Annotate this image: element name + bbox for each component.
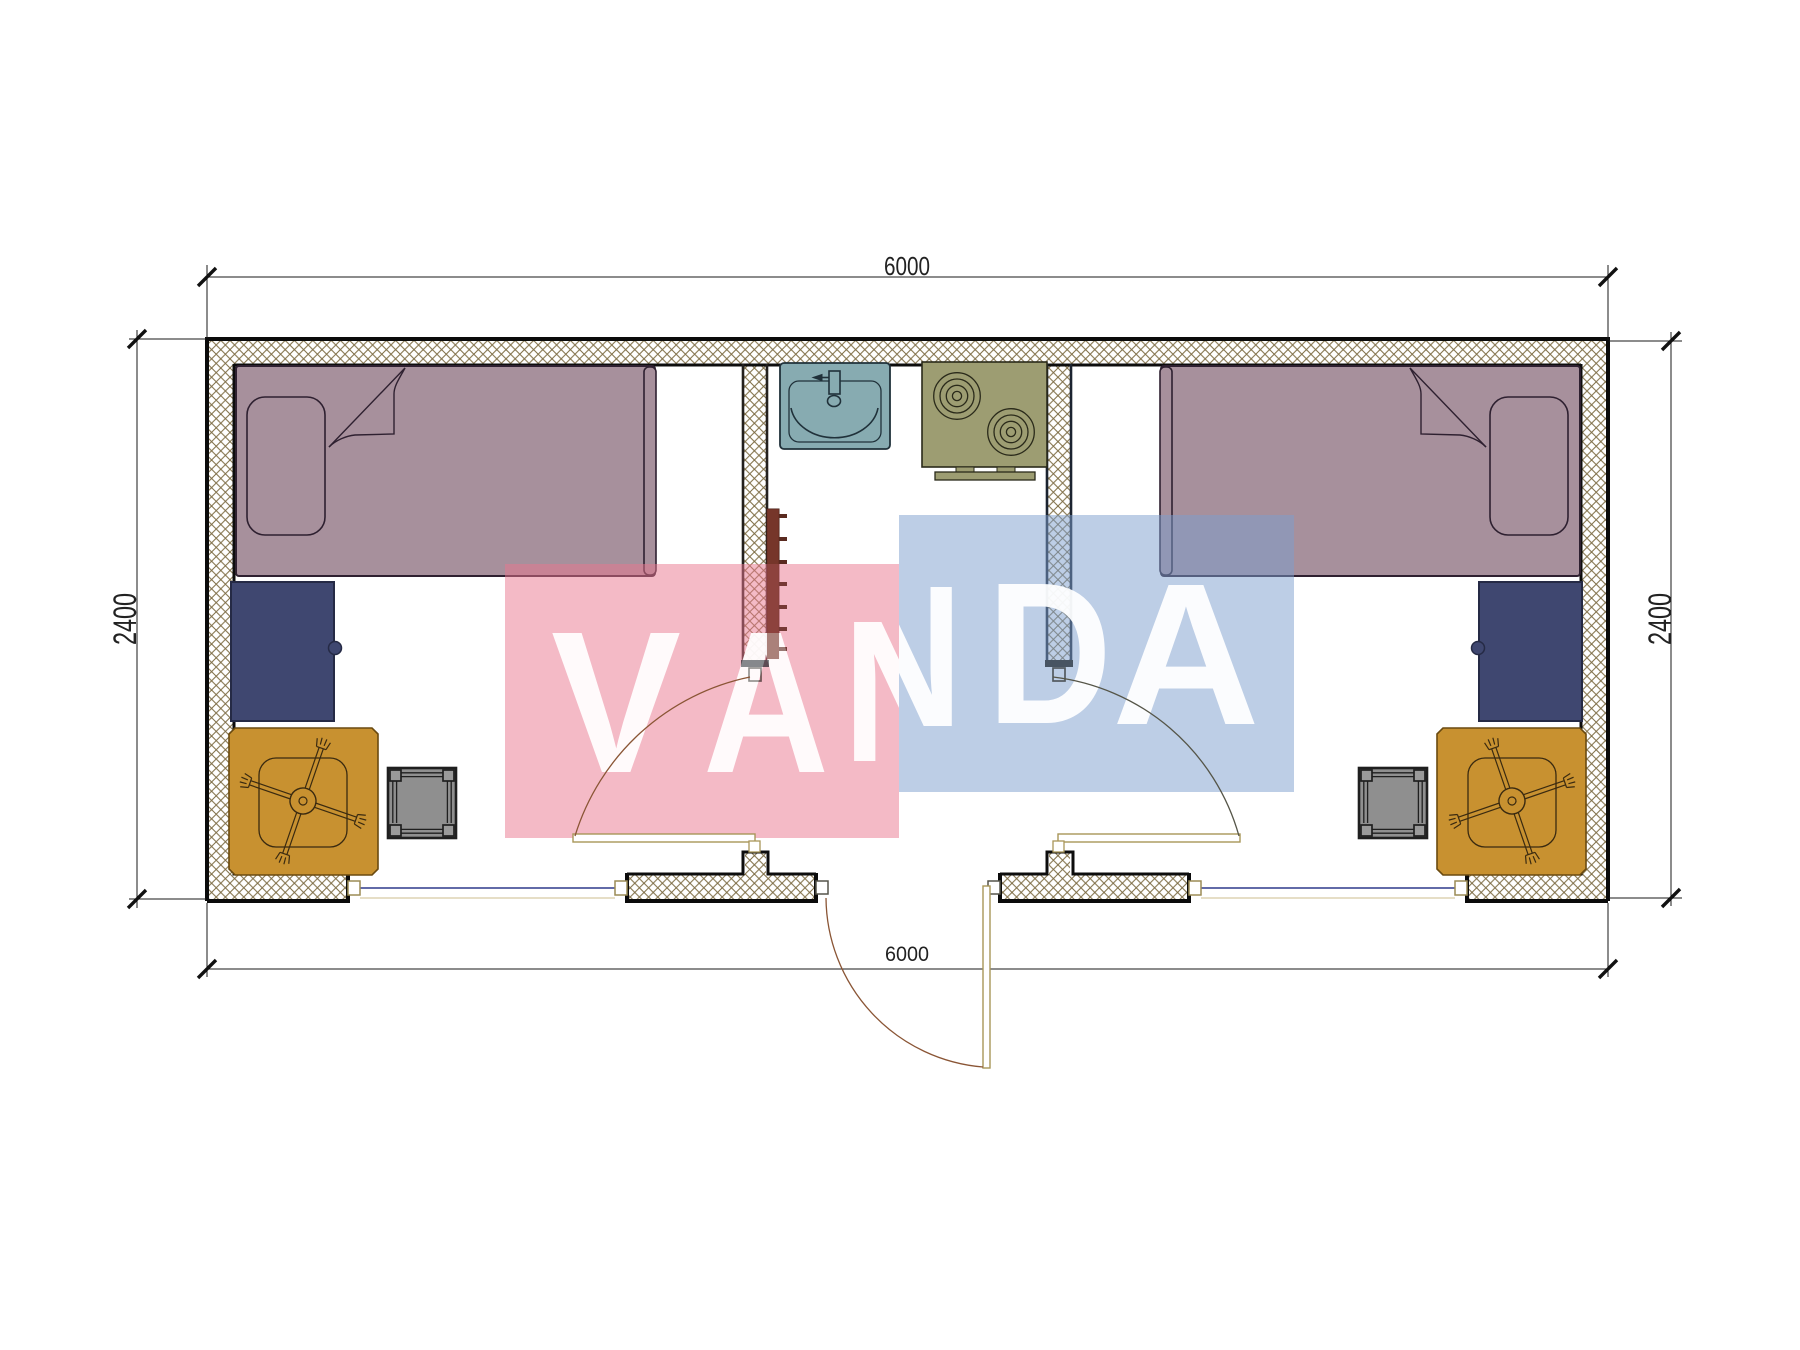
svg-text:2400: 2400	[107, 593, 143, 645]
svg-text:V: V	[551, 589, 681, 815]
svg-text:6000: 6000	[884, 251, 930, 281]
svg-text:6000: 6000	[885, 943, 929, 966]
svg-text:A: A	[703, 589, 829, 815]
svg-text:2400: 2400	[1642, 593, 1678, 645]
svg-text:A: A	[1112, 541, 1260, 767]
svg-text:D: D	[987, 540, 1112, 766]
